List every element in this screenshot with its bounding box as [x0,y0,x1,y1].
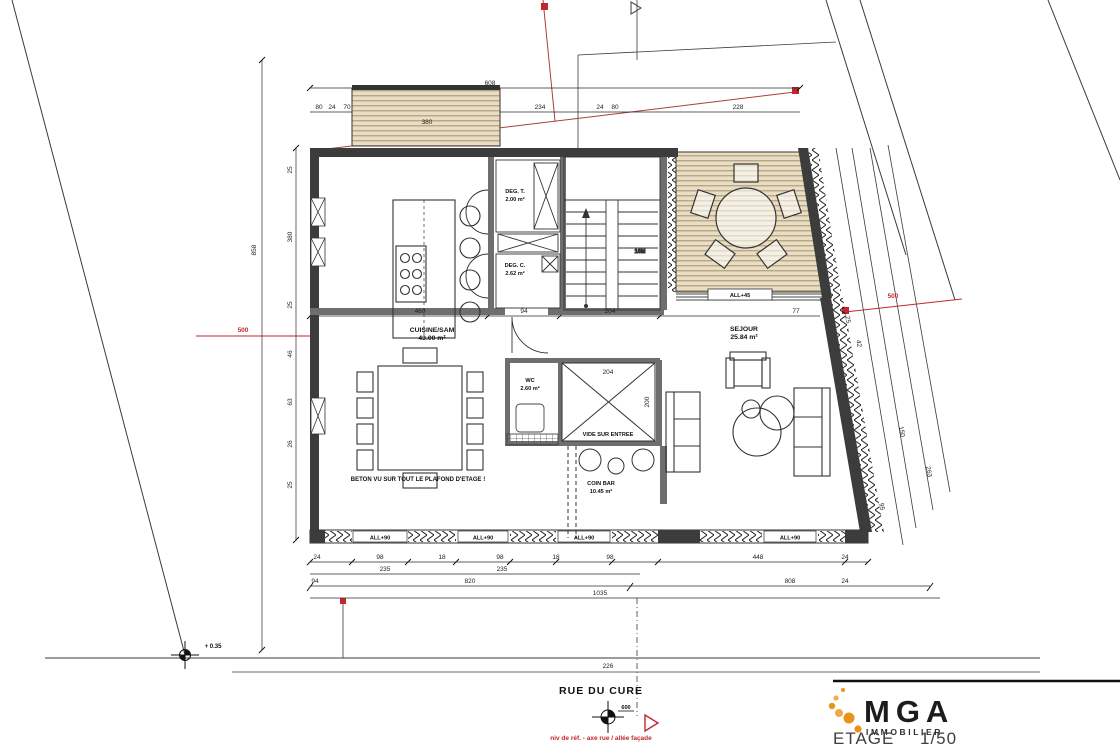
red-marker-top [541,3,548,10]
sheet-name: ETAGE [833,729,894,745]
room-area-wc: 2.60 m² [520,385,539,392]
room-label-sejour: SEJOUR [730,326,758,333]
room-label-cuisine: CUISINE/SAM [410,327,455,334]
level-value: 600 [621,705,630,711]
wall-top [310,148,678,157]
room-label-vide: VIDE SUR ENTREE [583,432,634,438]
site-dim-line-4 [888,145,950,492]
axis-arrow-icon [631,2,641,14]
dimension-label: 94 [520,308,528,315]
boundary-line-right-1 [826,0,906,255]
dining-table [378,366,462,470]
level-marker: 600 [592,701,634,733]
dimension-label: 234 [535,104,546,111]
window [818,531,845,542]
chair [357,398,373,418]
terrace-wall-hatch [668,152,676,292]
dimension-label: 235 [380,566,391,573]
dimension-label: 95 [877,503,885,512]
room-area-deg-t: 2.00 m² [505,196,524,203]
dimension-label: 98 [606,554,614,561]
bar-stool [608,458,624,474]
dimension-labels: 3806088024702342480228500500858253802546… [238,80,933,670]
chair [467,372,483,392]
dimension-label: 25 [287,166,294,174]
dimension-label: 820 [465,578,476,585]
dimension-label: 24 [596,104,604,111]
dimension-label: 80 [315,104,323,111]
wall-bottom: ALL+90 ALL+90 ALL+90 ALL+90 [310,530,868,543]
deg-rooms [496,160,560,308]
dimension-label: 63 [287,398,294,406]
boundary-line-left [12,0,185,655]
living-room [666,352,830,476]
bar-stool [579,449,601,471]
window [408,531,456,542]
toilet [516,404,544,432]
dimension-label: 18 [438,554,446,561]
stair-count-label: 16M [635,249,646,255]
street-block: RUE DU CURE 600 niv de réf. - axe rue / … [550,685,658,742]
red-flow-arrow-icon [645,715,658,731]
dimension-label: 200 [644,396,651,407]
dining-area [357,348,483,488]
bar-stool [460,270,480,290]
window-sill-label: ALL+90 [370,536,390,542]
room-area-deg-c: 2.62 m² [505,270,524,277]
armchair-arm [726,358,734,388]
bar-stool [632,449,654,471]
sheet-scale: 1/50 [920,729,957,745]
chair [357,424,373,444]
room-area-cuisine: 43.00 m² [418,335,446,342]
sofa-left [666,392,700,472]
chair [467,398,483,418]
dimension-label: 98 [496,554,504,561]
dimension-label: 150 [897,426,906,438]
brand-name: MGA [864,694,954,729]
window [612,531,658,542]
dimension-label: 228 [733,104,744,111]
sofa-right [794,388,830,476]
dimension-label: 380 [287,231,294,242]
coffee-table [760,396,794,430]
dimension-label: 98 [376,554,384,561]
window-sill-label: ALL+90 [574,536,594,542]
red-marker-bottom [340,598,346,604]
chair [403,348,437,363]
door-arc [466,190,488,234]
chair [467,424,483,444]
bar-stool [460,206,480,226]
street-name: RUE DU CURE [559,685,643,697]
wc-room [507,404,558,445]
lower-floor-outline-top [578,42,836,55]
dimension-label: 858 [251,244,258,255]
dimension-label: 25 [843,316,851,325]
dimension-label: 42 [854,340,862,349]
reference-note: niv de réf. - axe rue / allée façade [550,735,652,742]
dimension-label: 24 [328,104,336,111]
room-label-deg-c: DEG. C. [505,263,526,269]
dimension-label: 608 [485,80,496,87]
chair [467,450,483,470]
dimension-label: 77 [792,308,800,315]
dimension-label: 263 [924,466,933,478]
dimension-label: 94 [311,578,319,585]
room-area-coin-bar: 10.45 m² [590,488,613,495]
room-label-wc: WC [525,378,534,384]
ceiling-note: BETON VU SUR TOUT LE PLAFOND D'ETAGE ! [351,477,485,483]
dimension-label: 25 [287,481,294,489]
bar-stool [460,238,480,258]
dimension-label: 235 [497,566,508,573]
dimension-label: 808 [785,578,796,585]
dimension-label: 46 [287,350,294,358]
dimension-label: 500 [888,293,899,300]
dimension-label: 24 [841,578,849,585]
window [700,531,762,542]
dimension-label: 25 [287,301,294,309]
survey-point-label: + 0.35 [205,644,223,650]
floor-plan-sheet: + 0.35 [0,0,1120,745]
chair [357,372,373,392]
boundary-line-corner [1048,0,1120,180]
window-sill-label: ALL+90 [473,536,493,542]
dimension-label: 80 [611,104,619,111]
chair [357,450,373,470]
dimension-label: 1035 [593,590,608,597]
dimension-label: 380 [422,119,433,126]
armchair-seat [734,360,762,386]
dimension-label: 24 [841,554,849,561]
dimension-label: 448 [753,554,764,561]
dimension-label: 24 [313,554,321,561]
terrace-sill-label: ALL+45 [730,293,750,299]
floor-plan-drawing: + 0.35 [0,0,1120,745]
room-label-coin-bar: COIN BAR [587,481,615,487]
room-label-deg-t: DEG. T. [505,189,525,195]
door-arc [466,254,488,298]
staircase: 16M [564,157,660,310]
round-table [716,188,776,248]
interior-walls [310,157,667,504]
dimension-label: 70 [343,104,351,111]
wc-hatch [507,434,558,445]
survey-marker-left: + 0.35 [171,641,222,669]
dimension-label: 26 [287,440,294,448]
room-area-sejour: 25.84 m² [730,334,758,341]
dimension-label: 226 [603,663,614,670]
window [325,531,352,542]
dimension-label: 18 [552,554,560,561]
red-boundary-line-top [543,0,555,121]
armchair-back [730,352,766,360]
mga-logo-icon [829,688,862,733]
title-block: MGA IMMOBILIER ETAGE 1/50 [829,681,1120,745]
dimension-label: 460 [415,308,426,315]
dimension-label: 204 [603,369,614,376]
balcony-deck [352,85,500,146]
armchair-arm [762,358,770,388]
window [510,531,556,542]
window-sill-label: ALL+90 [780,536,800,542]
dimension-label: 204 [605,308,616,315]
door-arc [512,317,548,353]
dimension-label: 500 [238,327,249,334]
